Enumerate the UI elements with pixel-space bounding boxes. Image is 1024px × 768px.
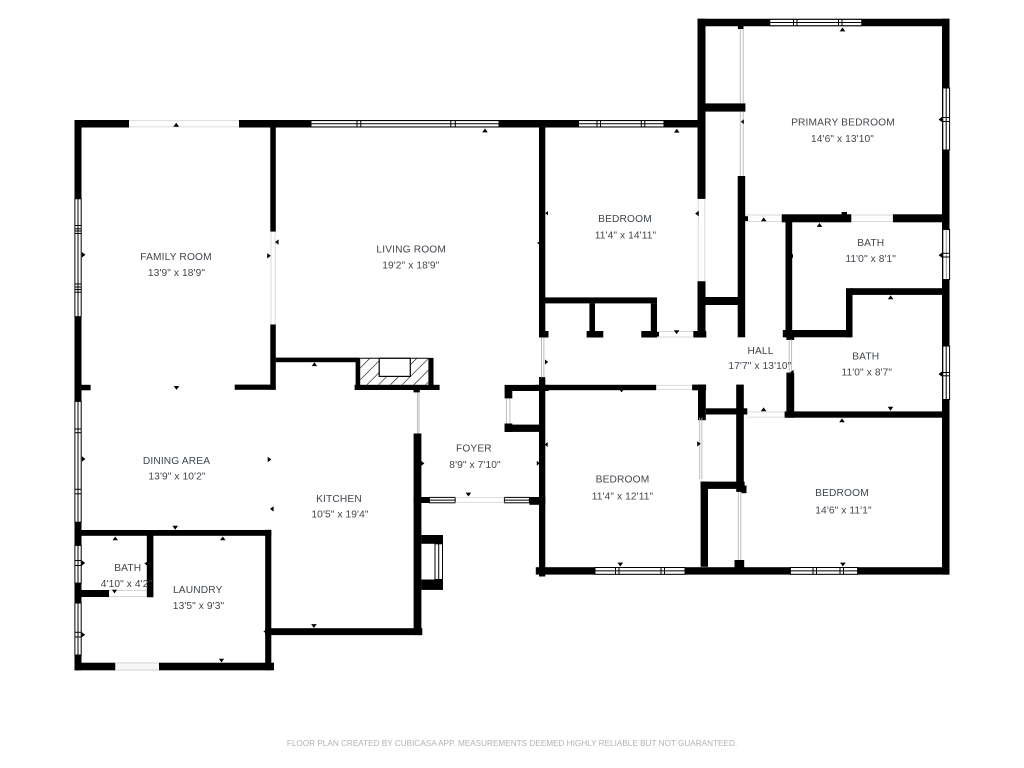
svg-text:13'9" x 10'2": 13'9" x 10'2" [148,472,205,483]
svg-text:11'4" x 12'11": 11'4" x 12'11" [592,492,654,503]
svg-text:BEDROOM: BEDROOM [598,214,652,225]
svg-text:FAMILY ROOM: FAMILY ROOM [140,252,211,263]
svg-text:14'6" x 13'10": 14'6" x 13'10" [811,134,874,145]
svg-text:8'9" x 7'10": 8'9" x 7'10" [449,460,501,471]
svg-text:19'2" x 18'9": 19'2" x 18'9" [382,261,439,272]
svg-text:DINING AREA: DINING AREA [143,456,210,467]
svg-text:13'5" x 9'3": 13'5" x 9'3" [173,601,225,612]
svg-text:11'0" x 8'1": 11'0" x 8'1" [845,254,896,265]
svg-text:BATH: BATH [114,563,141,574]
svg-text:11'4" x 14'11": 11'4" x 14'11" [595,230,657,241]
svg-text:14'6" x 11'1": 14'6" x 11'1" [815,506,872,517]
svg-text:FOYER: FOYER [456,444,492,455]
svg-text:PRIMARY BEDROOM: PRIMARY BEDROOM [791,118,895,129]
svg-text:4'10" x 4'2": 4'10" x 4'2" [101,579,153,590]
svg-text:KITCHEN: KITCHEN [316,494,362,505]
svg-text:13'9" x 18'9": 13'9" x 18'9" [148,268,205,279]
svg-text:10'5" x 19'4": 10'5" x 19'4" [311,510,368,521]
svg-text:BATH: BATH [857,238,884,249]
svg-text:HALL: HALL [747,346,773,357]
svg-text:BEDROOM: BEDROOM [596,475,650,486]
svg-text:LAUNDRY: LAUNDRY [173,585,223,596]
svg-text:BATH: BATH [852,352,879,363]
svg-text:LIVING ROOM: LIVING ROOM [376,245,446,256]
svg-text:17'7" x 13'10": 17'7" x 13'10" [728,361,791,372]
svg-text:FLOOR PLAN CREATED BY CUBICASA: FLOOR PLAN CREATED BY CUBICASA APP. MEAS… [287,739,737,748]
svg-text:BEDROOM: BEDROOM [815,488,869,499]
svg-text:11'0" x 8'7": 11'0" x 8'7" [841,368,892,379]
